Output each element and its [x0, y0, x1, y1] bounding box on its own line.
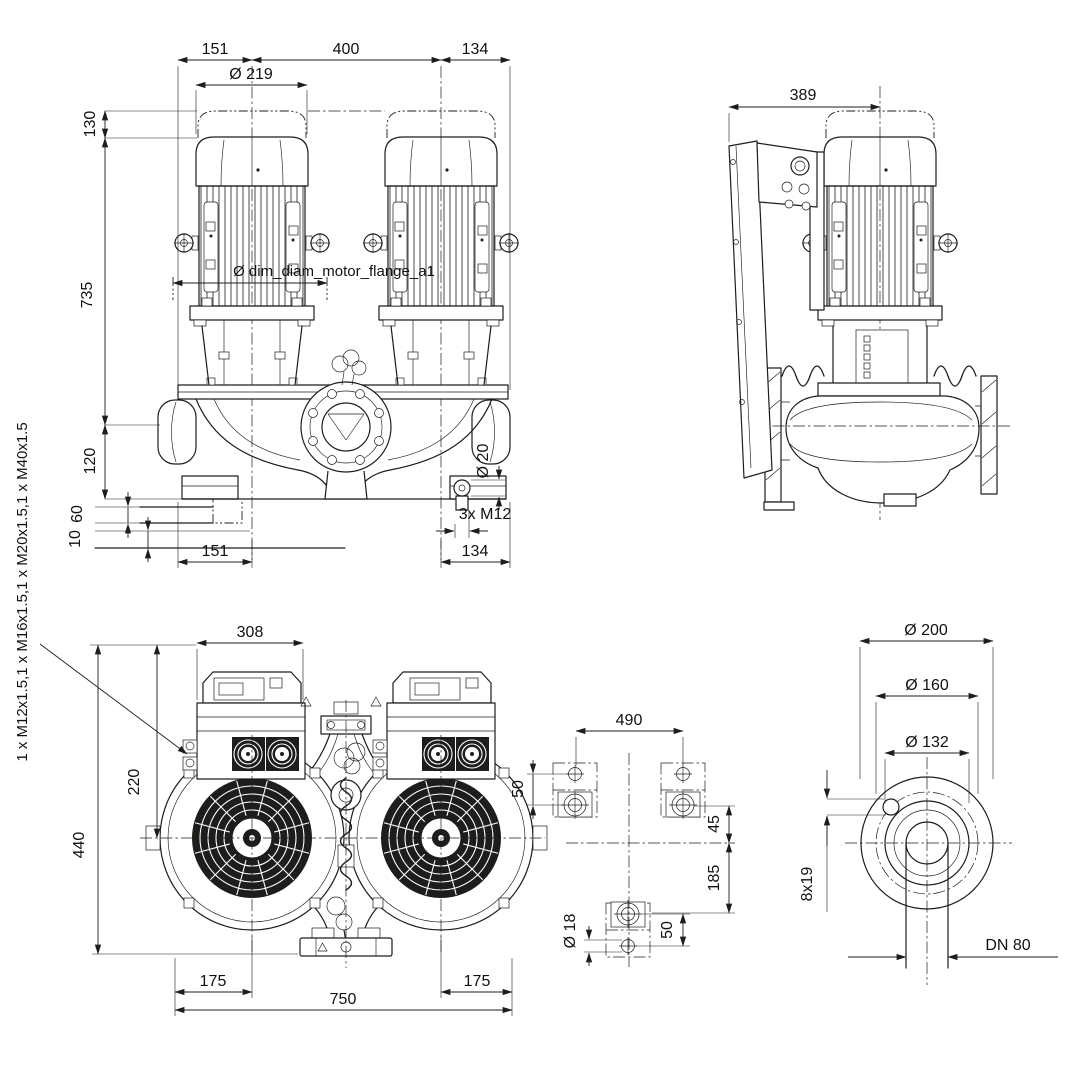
dim-bolt-spacing: 490 — [616, 712, 643, 729]
dim-hole-diameter: Ø 18 — [562, 914, 579, 949]
side-view: 389 — [729, 86, 1010, 520]
dim-depth: 389 — [790, 87, 817, 104]
dim-foot-left: 175 — [200, 973, 227, 990]
dim-nominal-bore: DN 80 — [985, 937, 1030, 954]
flange-view: Ø 200 Ø 160 Ø 132 8x19 DN 80 — [799, 622, 1058, 985]
motor-flange-label: Ø dim_diam_motor_flange_a1 — [233, 263, 435, 280]
dim-drain-diameter: Ø 20 — [475, 444, 492, 479]
dim-raised-face: Ø 132 — [905, 734, 949, 751]
cable-gland-note: 1 x M12x1.5,1 x M16x1.5,1 x M20x1.5,1 x … — [14, 422, 31, 761]
dim-foot-height: 60 — [69, 505, 86, 523]
dim-hole-pitch-bottom: 50 — [659, 921, 676, 939]
dim-drain-thread: 3x M12 — [459, 506, 512, 523]
dim-offset-above-axis: 45 — [706, 815, 723, 833]
drawing-canvas: 151 400 134 Ø 219 130 735 120 60 10 Ø di… — [0, 0, 1086, 1080]
dim-axis-offset: 220 — [126, 769, 143, 796]
dim-width-left-bottom: 151 — [202, 543, 229, 560]
dim-hole-pitch-left: 50 — [510, 780, 527, 798]
dim-height-cap: 130 — [82, 111, 99, 138]
dim-width-center: 400 — [333, 41, 360, 58]
dim-width-left: 151 — [202, 41, 229, 58]
front-view: 151 400 134 Ø 219 130 735 120 60 10 Ø di… — [67, 41, 519, 568]
dim-motor-diameter: Ø 219 — [229, 66, 273, 83]
dim-offset-below-axis: 185 — [706, 865, 723, 892]
dim-foot-right: 175 — [464, 973, 491, 990]
dim-module-width: 308 — [237, 624, 264, 641]
dim-shim-height: 10 — [67, 530, 84, 548]
dim-width-right: 134 — [462, 41, 489, 58]
dim-axis-to-base: 120 — [82, 448, 99, 475]
dim-height-motor-axis: 735 — [79, 282, 96, 309]
dim-outer-diameter: Ø 200 — [904, 622, 948, 639]
dim-width-right-bottom: 134 — [462, 543, 489, 560]
dim-bolt-circle: Ø 160 — [905, 677, 949, 694]
dim-length-total: 750 — [330, 991, 357, 1008]
technical-drawing: 151 400 134 Ø 219 130 735 120 60 10 Ø di… — [0, 0, 1086, 1080]
dim-bolt-holes: 8x19 — [799, 867, 816, 902]
dim-depth-total: 440 — [71, 832, 88, 859]
